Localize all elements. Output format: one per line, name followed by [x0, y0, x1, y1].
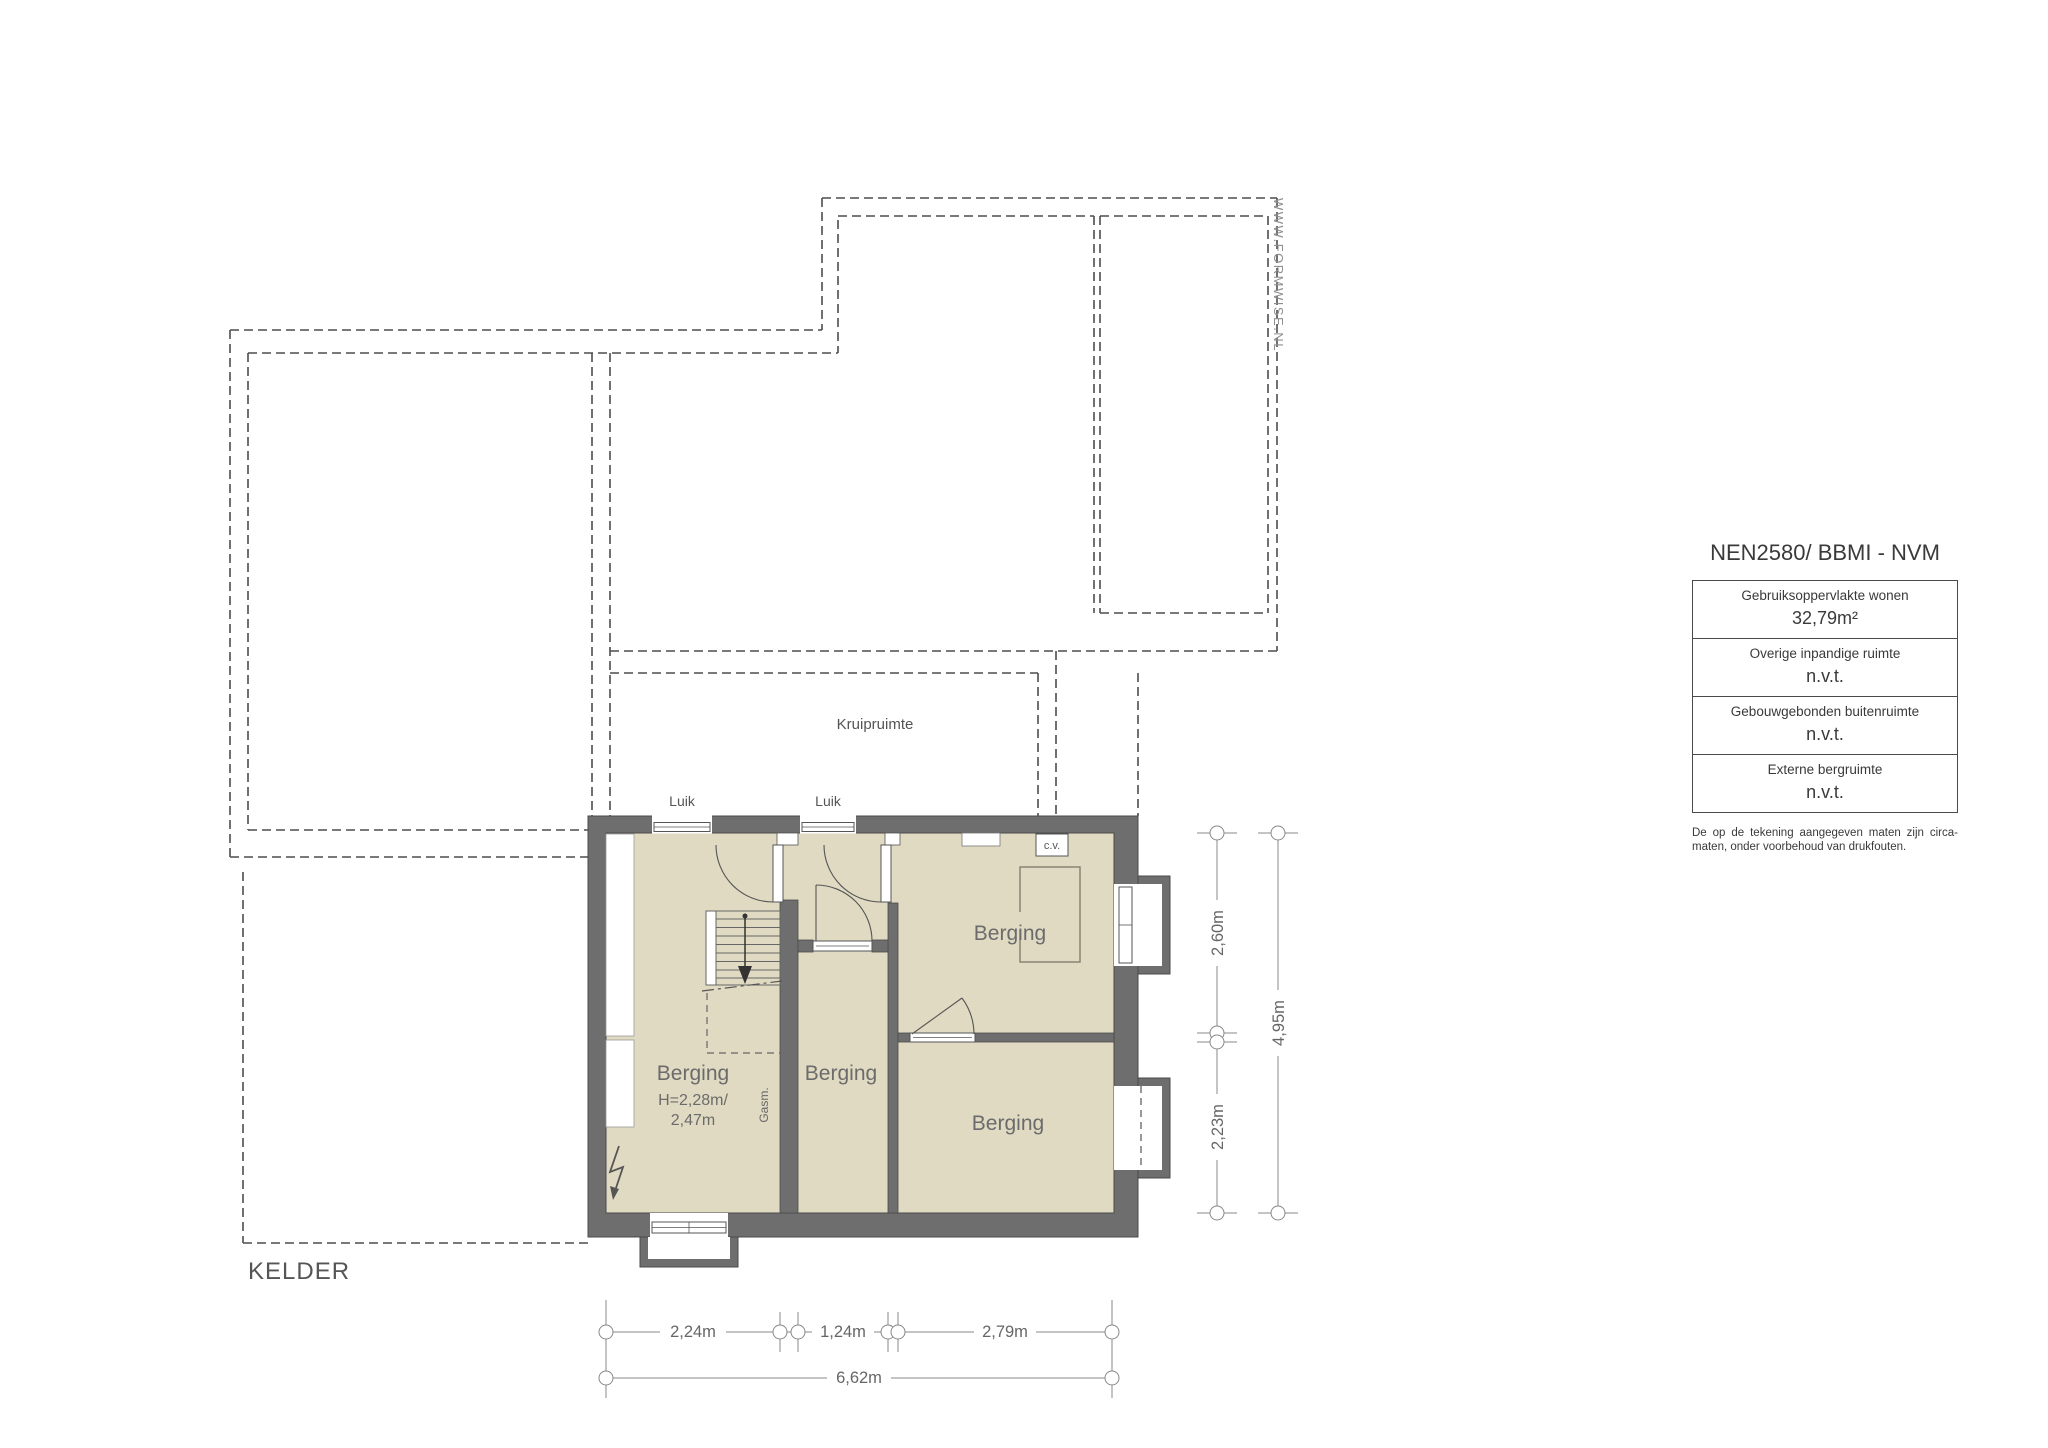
bottom-dimension-labels: 2,24m 1,24m 2,79m 6,62m — [660, 1322, 1036, 1387]
room-height-note-2: 2,47m — [671, 1112, 715, 1129]
hatch-label-1: Luik — [669, 793, 696, 809]
floorplan-page: c.v. Berging H=2,28m/ 2,47m Berging Berg… — [0, 0, 2048, 1448]
room-label-berging-topright: Berging — [974, 922, 1046, 945]
hatch-label-2: Luik — [815, 793, 842, 809]
svg-text:2,79m: 2,79m — [982, 1323, 1028, 1341]
room-label-berging-bottomright: Berging — [972, 1112, 1044, 1135]
legend-table: Gebruiksoppervlakte wonen 32,79m² Overig… — [1692, 580, 1958, 813]
legend-row-value: 32,79m² — [1695, 608, 1955, 629]
legend-row-label: Externe bergruimte — [1695, 762, 1955, 777]
left-wall-cupboards — [606, 834, 634, 1127]
legend-row-wonen: Gebruiksoppervlakte wonen 32,79m² — [1693, 581, 1957, 639]
legend-row-inpandig: Overige inpandige ruimte n.v.t. — [1693, 639, 1957, 697]
cv-label: c.v. — [1044, 840, 1060, 852]
watermark-text: WWW.FORMWISE.NL — [1271, 198, 1286, 352]
legend-row-value: n.v.t. — [1695, 724, 1955, 745]
svg-text:6,62m: 6,62m — [836, 1369, 882, 1387]
crawlspace-label: Kruipruimte — [837, 716, 914, 733]
legend-title: NEN2580/ BBMI - NVM — [1692, 540, 1958, 566]
legend-row-buitenruimte: Gebouwgebonden buitenruimte n.v.t. — [1693, 697, 1957, 755]
svg-text:2,24m: 2,24m — [670, 1323, 716, 1341]
room-height-note-1: H=2,28m/ — [658, 1092, 728, 1109]
gas-meter-label: Gasm. — [757, 1087, 771, 1122]
legend-footnote: De op de tekening aangegeven maten zijn … — [1692, 827, 1958, 855]
legend-row-value: n.v.t. — [1695, 666, 1955, 687]
legend-row-label: Gebruiksoppervlakte wonen — [1695, 588, 1955, 603]
legend-row-label: Gebouwgebonden buitenruimte — [1695, 704, 1955, 719]
room-label-berging-middle: Berging — [805, 1062, 877, 1085]
right-upper-window — [1114, 876, 1170, 974]
floor-title: KELDER — [248, 1258, 350, 1286]
room-label-berging-left: Berging — [657, 1062, 729, 1085]
bottom-window-lightwell — [640, 1213, 738, 1267]
wall-recess — [962, 833, 1000, 846]
legend-row-label: Overige inpandige ruimte — [1695, 646, 1955, 661]
svg-text:2,60m: 2,60m — [1209, 910, 1227, 956]
svg-text:4,95m: 4,95m — [1270, 1000, 1288, 1046]
legend-panel: NEN2580/ BBMI - NVM Gebruiksoppervlakte … — [1692, 540, 1958, 855]
legend-row-value: n.v.t. — [1695, 782, 1955, 803]
basement-floor — [606, 833, 1114, 1213]
svg-text:1,24m: 1,24m — [820, 1323, 866, 1341]
right-lower-opening — [1114, 1078, 1170, 1178]
svg-text:2,23m: 2,23m — [1209, 1104, 1227, 1150]
legend-row-bergruimte: Externe bergruimte n.v.t. — [1693, 755, 1957, 812]
